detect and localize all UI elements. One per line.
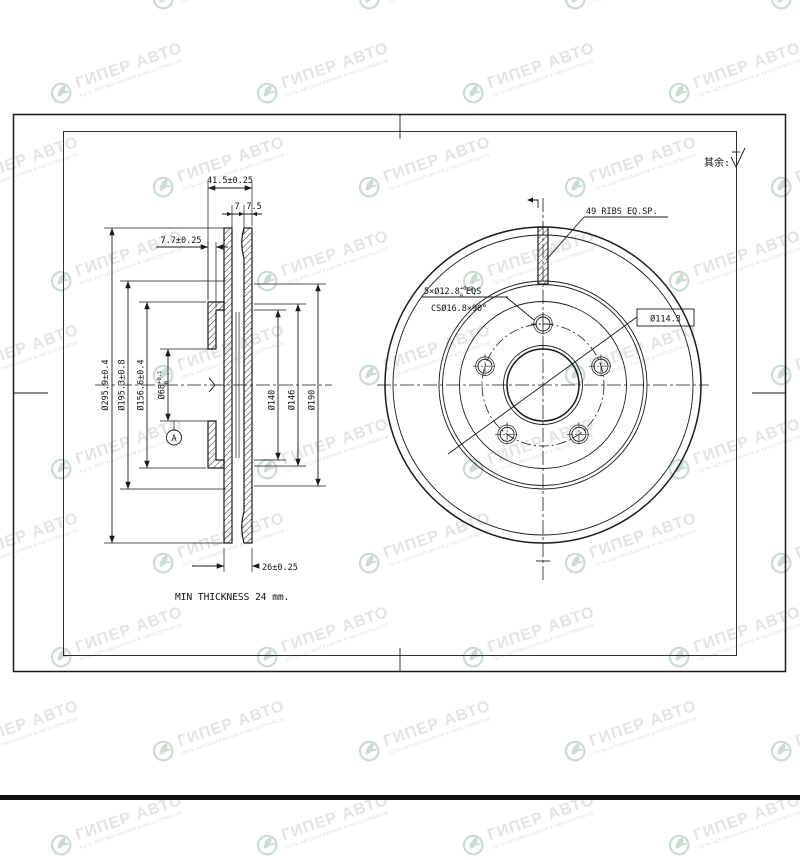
bottom-bar <box>0 795 800 800</box>
bolt-hole-callout: 5×Ø12.8+0.20EQS CSØ16.8×90° <box>422 286 534 320</box>
drawing-frame <box>14 115 787 672</box>
watermark-brand: ГИПЕР АВТО <box>692 793 800 845</box>
dim-flange-thickness-group: 7.7±0.25 <box>156 236 228 308</box>
watermark-tile: ГИПЕР АВТО СЕТЬ АВТОМАГАЗИНОВ И АВТОСЕРВ… <box>664 792 800 860</box>
dim-height: 41.5±0.25 <box>207 176 253 186</box>
dim-plate-b: 7.5 <box>246 202 261 212</box>
bolt-hole <box>589 354 613 378</box>
rib-section-detail <box>538 227 548 284</box>
watermark-tile: ГИПЕР АВТО СЕТЬ АВТОМАГАЗИНОВ И АВТОСЕРВ… <box>252 792 393 860</box>
datum-a-label: A <box>171 434 176 444</box>
hat-flange-lower <box>208 421 224 468</box>
bolt-hole <box>567 422 591 446</box>
watermark-logo-icon <box>458 830 489 860</box>
surface-finish-note: 其余: <box>704 148 745 169</box>
watermark-logo-icon <box>664 830 695 860</box>
dim-diameters-left: Ø295.9±0.4 Ø195.3±0.8 Ø156.6±0.4 Ø68+0.1… <box>100 228 226 543</box>
countersink-label: CSØ16.8×90° <box>431 303 487 314</box>
surface-finish-icon <box>731 148 745 167</box>
bolt-holes <box>473 312 613 446</box>
dim-flange-thickness: 7.7±0.25 <box>161 236 202 246</box>
dim-mid-1: Ø140 <box>267 390 278 410</box>
dim-mid-3: Ø190 <box>307 390 318 410</box>
brake-disc-technical-drawing: 其余: 41.5±0.25 <box>0 0 800 800</box>
outboard-plate-section <box>224 228 232 543</box>
pcd-callout: Ø114.3 <box>448 309 694 454</box>
rotation-direction-icon <box>527 198 538 209</box>
section-view: 41.5±0.25 7 7.5 7.7±0.25 <box>95 176 332 603</box>
bolt-hole <box>495 422 519 446</box>
bolt-hole <box>473 354 497 378</box>
watermark-brand: ГИПЕР АВТО <box>486 793 597 845</box>
dim-total-thickness-group: 26±0.25 <box>192 548 298 573</box>
watermark-brand: ГИПЕР АВТО <box>74 793 185 845</box>
datum-a-symbol: A <box>167 421 182 445</box>
dim-transition-dia: Ø195.3±0.8 <box>117 359 128 410</box>
pcd-label: Ø114.3 <box>650 314 681 325</box>
front-view: 49 RIBS EQ.SP. 5×Ø12.8+0.20EQS CSØ16.8×9… <box>377 198 709 583</box>
watermark-logo-icon <box>46 830 77 860</box>
min-thickness-note: MIN THICKNESS 24 mm. <box>175 592 289 603</box>
dim-total-thickness: 26±0.25 <box>262 563 298 573</box>
dim-mid-2: Ø146 <box>287 390 298 410</box>
dim-outer-dia: Ø295.9±0.4 <box>100 359 111 410</box>
watermark-tagline: СЕТЬ АВТОМАГАЗИНОВ И АВТОСЕРВИСОВ <box>285 809 393 850</box>
watermark-logo-icon <box>252 830 283 860</box>
dim-hat-dia: Ø156.6±0.4 <box>136 359 147 410</box>
surface-rest-label: 其余: <box>704 156 730 169</box>
watermark-brand: ГИПЕР АВТО <box>280 793 391 845</box>
watermark-tagline: СЕТЬ АВТОМАГАЗИНОВ И АВТОСЕРВИСОВ <box>491 809 599 850</box>
watermark-tagline: СЕТЬ АВТОМАГАЗИНОВ И АВТОСЕРВИСОВ <box>697 809 800 850</box>
watermark-tagline: СЕТЬ АВТОМАГАЗИНОВ И АВТОСЕРВИСОВ <box>79 809 187 850</box>
inboard-plate-section <box>242 228 252 543</box>
ribs-label: 49 RIBS EQ.SP. <box>586 207 658 217</box>
ribs-callout: 49 RIBS EQ.SP. <box>546 207 668 260</box>
bolt-hole <box>531 312 555 336</box>
dim-plate-a: 7 <box>234 202 239 212</box>
watermark-tile: ГИПЕР АВТО СЕТЬ АВТОМАГАЗИНОВ И АВТОСЕРВ… <box>458 792 599 860</box>
holes-label: 5×Ø12.8+0.20EQS <box>424 286 481 300</box>
hat-flange-upper <box>208 302 224 349</box>
watermark-tile: ГИПЕР АВТО СЕТЬ АВТОМАГАЗИНОВ И АВТОСЕРВ… <box>46 792 187 860</box>
